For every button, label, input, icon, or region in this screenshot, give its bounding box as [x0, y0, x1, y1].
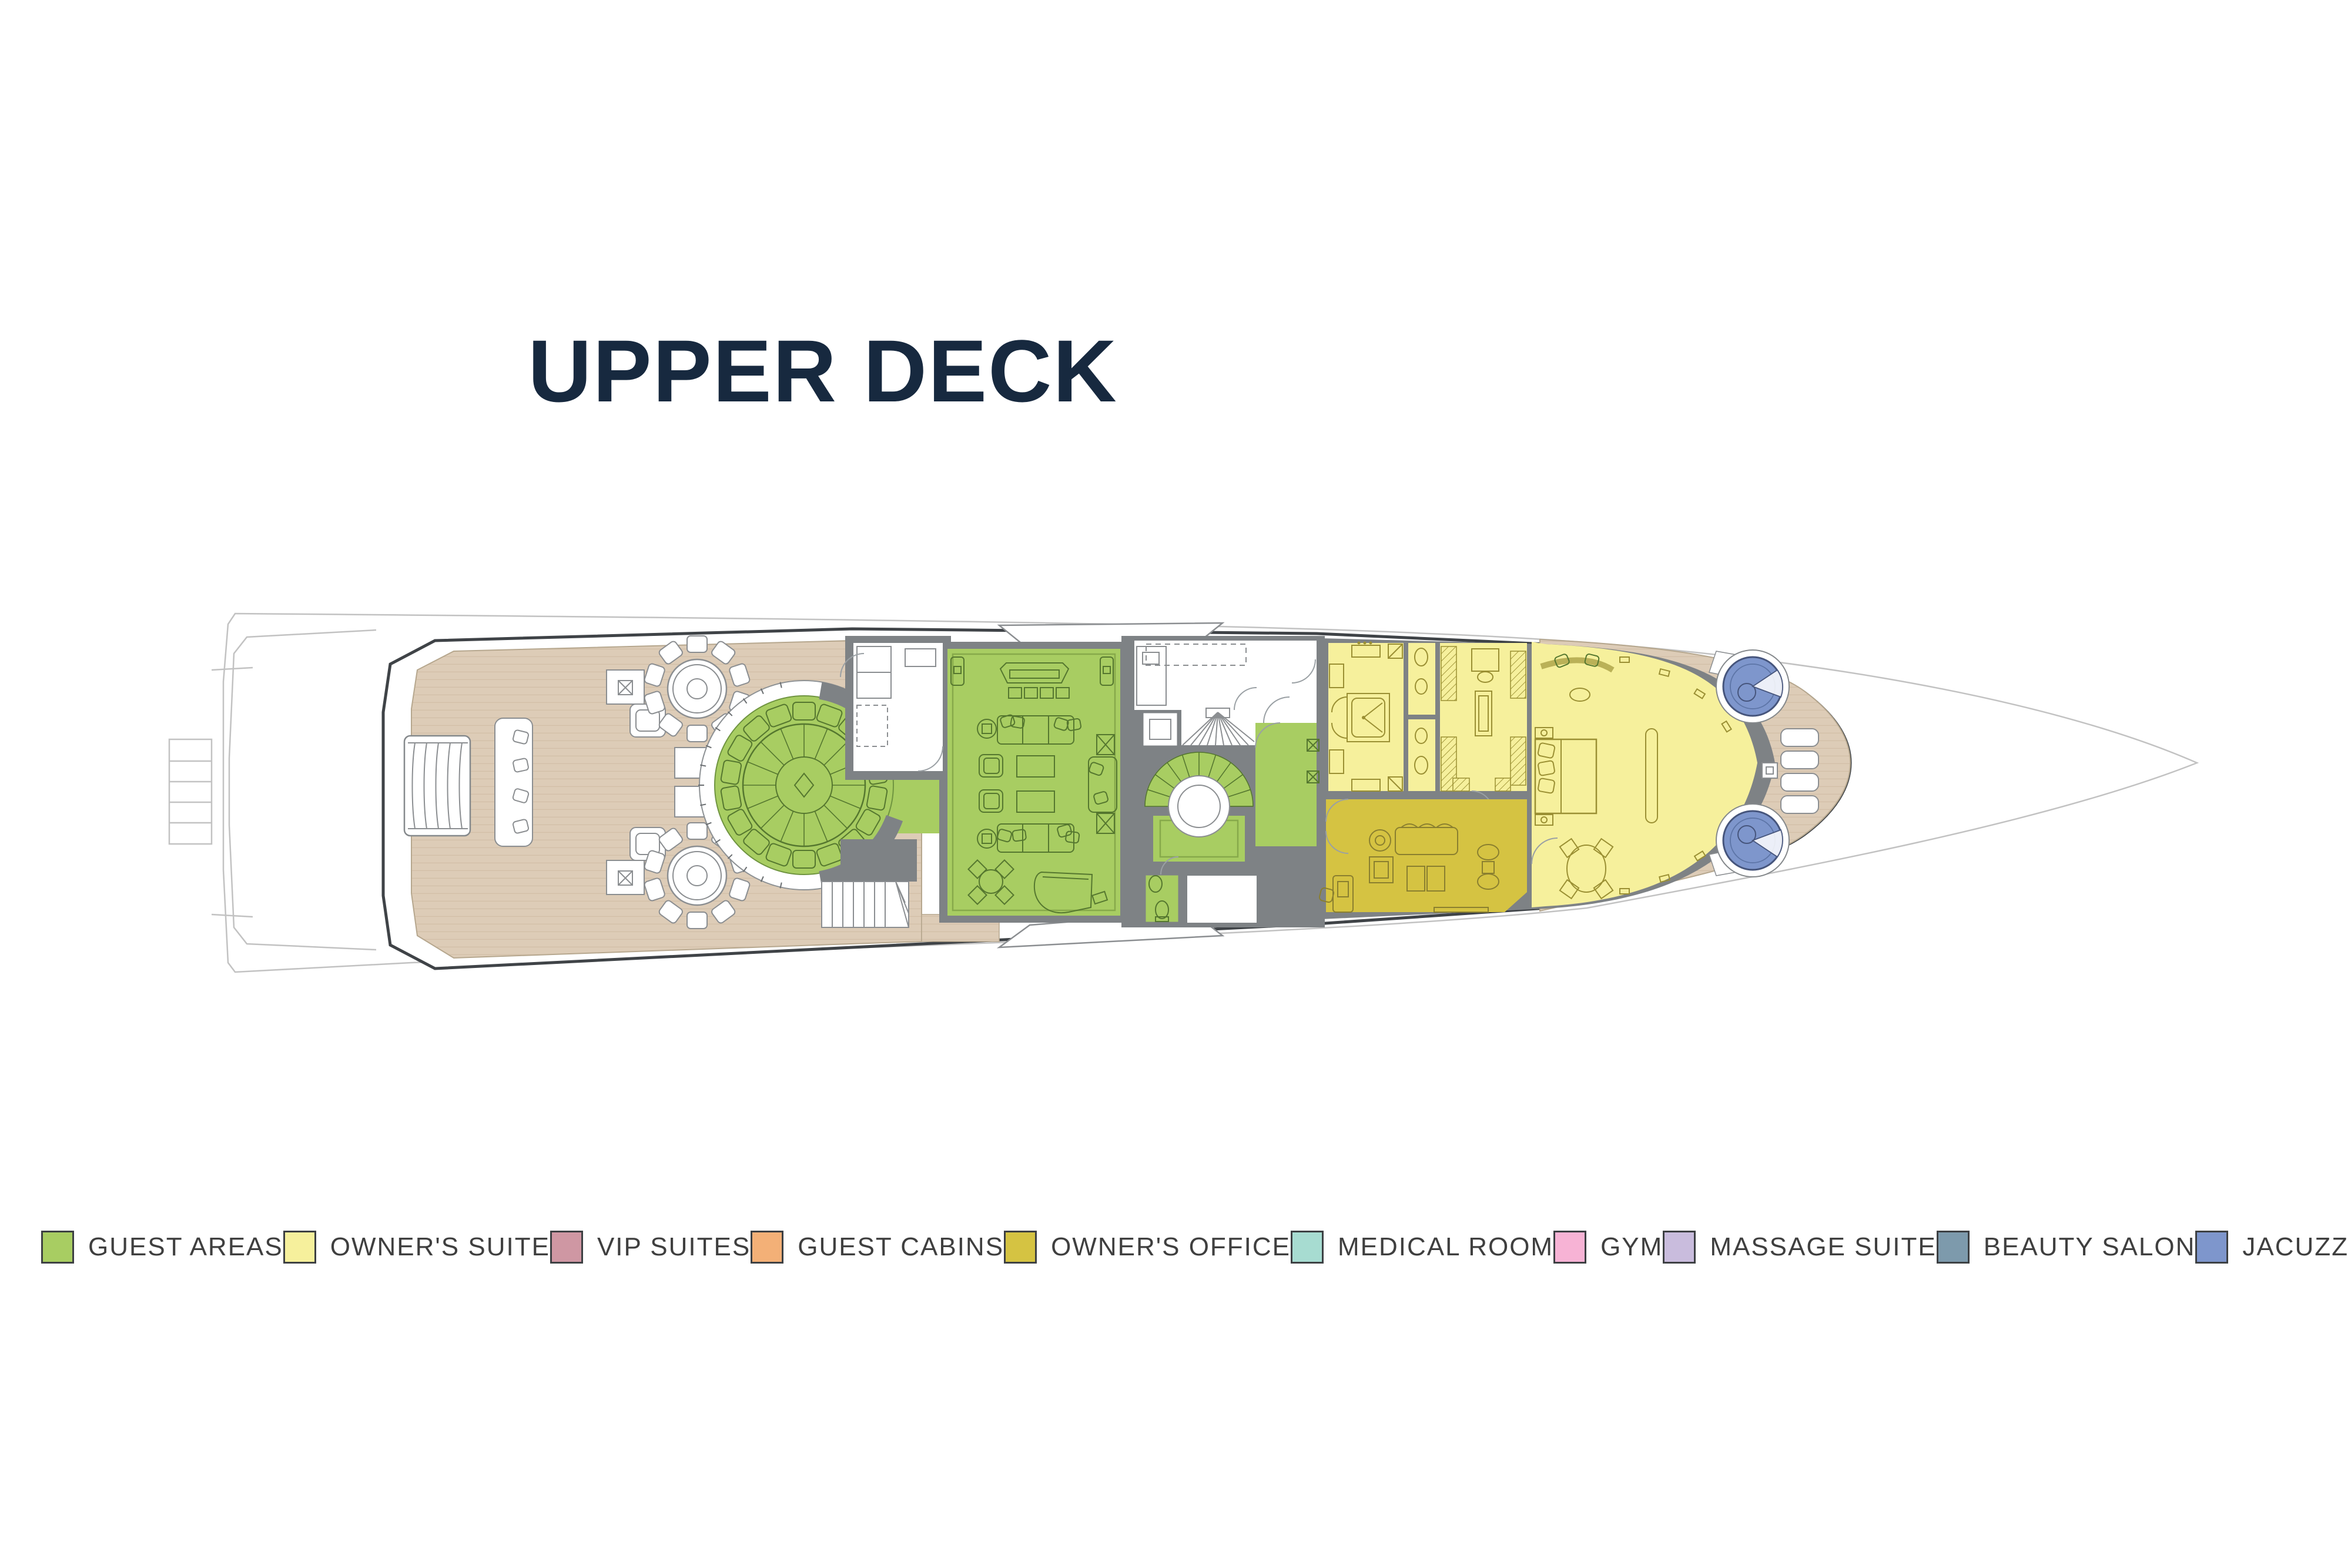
owners-suite-swatch: [283, 1231, 316, 1264]
aft-stairs-balustrade: [404, 736, 470, 836]
legend-item-jacuzzi: JACUZZI: [2195, 1231, 2351, 1264]
guest-cabins-swatch: [751, 1231, 783, 1264]
sky-lounge: [947, 649, 1120, 916]
legend-label: VIP SUITES: [597, 1232, 751, 1262]
legend-item-guest-areas: GUEST AREAS: [41, 1231, 283, 1264]
legend-label: OWNER'S SUITE: [330, 1232, 550, 1262]
legend-item-medical-room: MEDICAL ROOM: [1291, 1231, 1553, 1264]
legend-label: MASSAGE SUITE: [1710, 1232, 1936, 1262]
jacuzzi-starboard: [1716, 804, 1789, 877]
legend-item-beauty-salon: BEAUTY SALON: [1937, 1231, 2196, 1264]
suite-lobby: [1255, 641, 1317, 723]
medical-room-swatch: [1291, 1231, 1324, 1264]
fan-stairs: [1181, 708, 1255, 745]
legend-label: GUEST CABINS: [798, 1232, 1004, 1262]
dumbwaiter: [1143, 712, 1178, 746]
legend-label: OWNER'S OFFICE: [1051, 1232, 1291, 1262]
vip-suites-swatch: [550, 1231, 583, 1264]
legend-label: MEDICAL ROOM: [1338, 1232, 1553, 1262]
legend-label: JACUZZI: [2242, 1232, 2351, 1262]
upper-deck-floor-plan: [0, 0, 2351, 1568]
legend-item-gym: GYM: [1553, 1231, 1663, 1264]
jacuzzi-port: [1716, 650, 1789, 723]
page: { "title": "UPPER DECK", "legend": { "it…: [0, 0, 2351, 1568]
legend-item-vip-suites: VIP SUITES: [550, 1231, 751, 1264]
owners-dressing-room: [1440, 643, 1527, 812]
legend-item-owners-office: OWNER'S OFFICE: [1004, 1231, 1291, 1264]
legend-item-guest-cabins: GUEST CABINS: [751, 1231, 1004, 1264]
suite-vestibule: [1255, 723, 1319, 846]
guest-areas-swatch: [41, 1231, 74, 1264]
pantry: [853, 643, 943, 771]
legend-label: GUEST AREAS: [88, 1232, 283, 1262]
legend-label: GYM: [1600, 1232, 1663, 1262]
owners-office-swatch: [1004, 1231, 1037, 1264]
legend: GUEST AREAS OWNER'S SUITE VIP SUITES GUE…: [41, 1231, 2275, 1264]
legend-item-massage-suite: MASSAGE SUITE: [1663, 1231, 1936, 1264]
jacuzzi-swatch: [2195, 1231, 2228, 1264]
beauty-salon-swatch: [1937, 1231, 1970, 1264]
gym-swatch: [1553, 1231, 1586, 1264]
store-room: [1187, 876, 1257, 923]
massage-suite-swatch: [1663, 1231, 1696, 1264]
legend-label: BEAUTY SALON: [1984, 1232, 2196, 1262]
owners-bathroom: [1328, 642, 1404, 792]
legend-item-owners-suite: OWNER'S SUITE: [283, 1231, 550, 1264]
day-head: [1145, 875, 1179, 923]
owners-office: [1319, 799, 1527, 912]
